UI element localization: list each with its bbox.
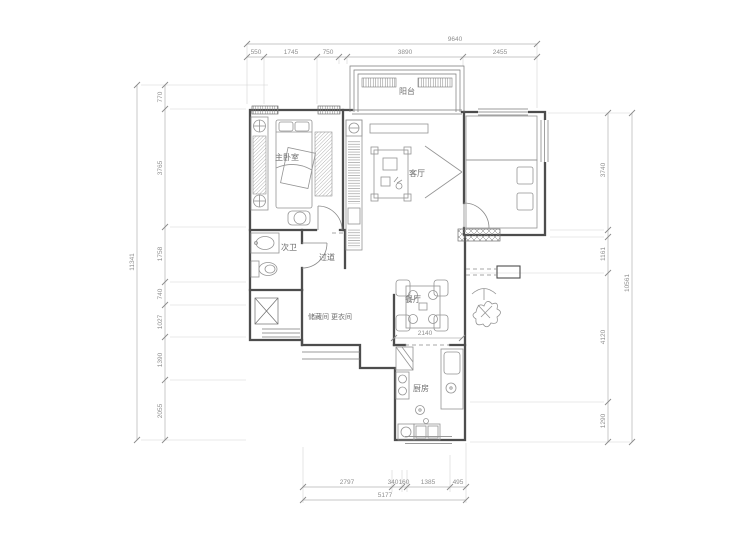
room-label-balcony: 阳台 [399, 86, 415, 96]
dim-bottom-seg-2: 160 [399, 479, 410, 486]
dim-top-seg-4: 2455 [493, 49, 508, 56]
dimension-dining-width: 2140 [391, 330, 465, 341]
dim-left-seg-2: 1758 [157, 246, 164, 261]
floor-plan-drawing: 9640 550 1745 750 3890 2455 11341 [0, 0, 740, 555]
room-label-living-room: 客厅 [409, 168, 425, 178]
room-label-storage-dressing: 储藏间 更衣间 [308, 312, 352, 321]
dim-left-seg-1: 3765 [157, 160, 164, 175]
interior-walls [250, 110, 520, 345]
dim-left-seg-0: 770 [157, 91, 164, 102]
dim-left-seg-5: 1390 [157, 352, 164, 367]
dim-bottom-seg-0: 2797 [340, 479, 355, 486]
plant [472, 289, 501, 327]
dim-top-seg-3: 3890 [398, 49, 413, 56]
dim-bottom-seg-3: 1385 [421, 479, 436, 486]
dim-right-seg-1: 1161 [600, 247, 607, 261]
dim-dining-width: 2140 [418, 330, 433, 337]
dimension-bottom: 2797 340 160 1385 495 5177 [300, 443, 469, 503]
room-label-dining-room: 餐厅 [405, 295, 421, 304]
doors [302, 203, 497, 345]
dim-left-total: 11341 [129, 253, 136, 271]
dim-right-seg-0: 3740 [600, 162, 607, 177]
dim-bottom-seg-4: 495 [453, 479, 464, 486]
master-bedroom-furniture [251, 117, 332, 225]
dim-top-total: 9640 [448, 36, 463, 43]
dim-bottom-total: 5177 [378, 492, 393, 499]
kitchen-fixtures [396, 347, 463, 440]
dim-left-seg-6: 2055 [157, 403, 164, 418]
room-label-second-bathroom: 次卫 [281, 242, 297, 252]
dim-bottom-seg-1: 340 [388, 479, 399, 486]
room-label-master-bedroom: 主卧室 [275, 152, 299, 162]
right-bedroom-furniture [466, 116, 537, 228]
dimension-left: 11341 770 3765 1758 740 1027 1390 2055 [129, 82, 268, 443]
living-room-furniture [346, 120, 462, 250]
dim-left-seg-3: 740 [157, 288, 164, 299]
dim-right-seg-2: 4120 [600, 329, 607, 344]
dim-top-seg-1: 1745 [284, 49, 299, 56]
dimension-top: 9640 550 1745 750 3890 2455 [244, 36, 540, 108]
dim-right-seg-3: 1290 [600, 413, 607, 428]
dim-right-total: 10561 [624, 274, 631, 292]
floor-plan-canvas: 9640 550 1745 750 3890 2455 11341 [0, 0, 740, 555]
dim-top-seg-2: 750 [323, 49, 334, 56]
dim-top-seg-0: 550 [251, 49, 262, 56]
room-label-hallway: 过道 [319, 252, 335, 262]
bathroom-fixtures [251, 233, 279, 277]
dining-furniture [396, 280, 448, 331]
dim-left-seg-4: 1027 [157, 314, 164, 329]
room-label-kitchen: 厨房 [413, 383, 429, 393]
